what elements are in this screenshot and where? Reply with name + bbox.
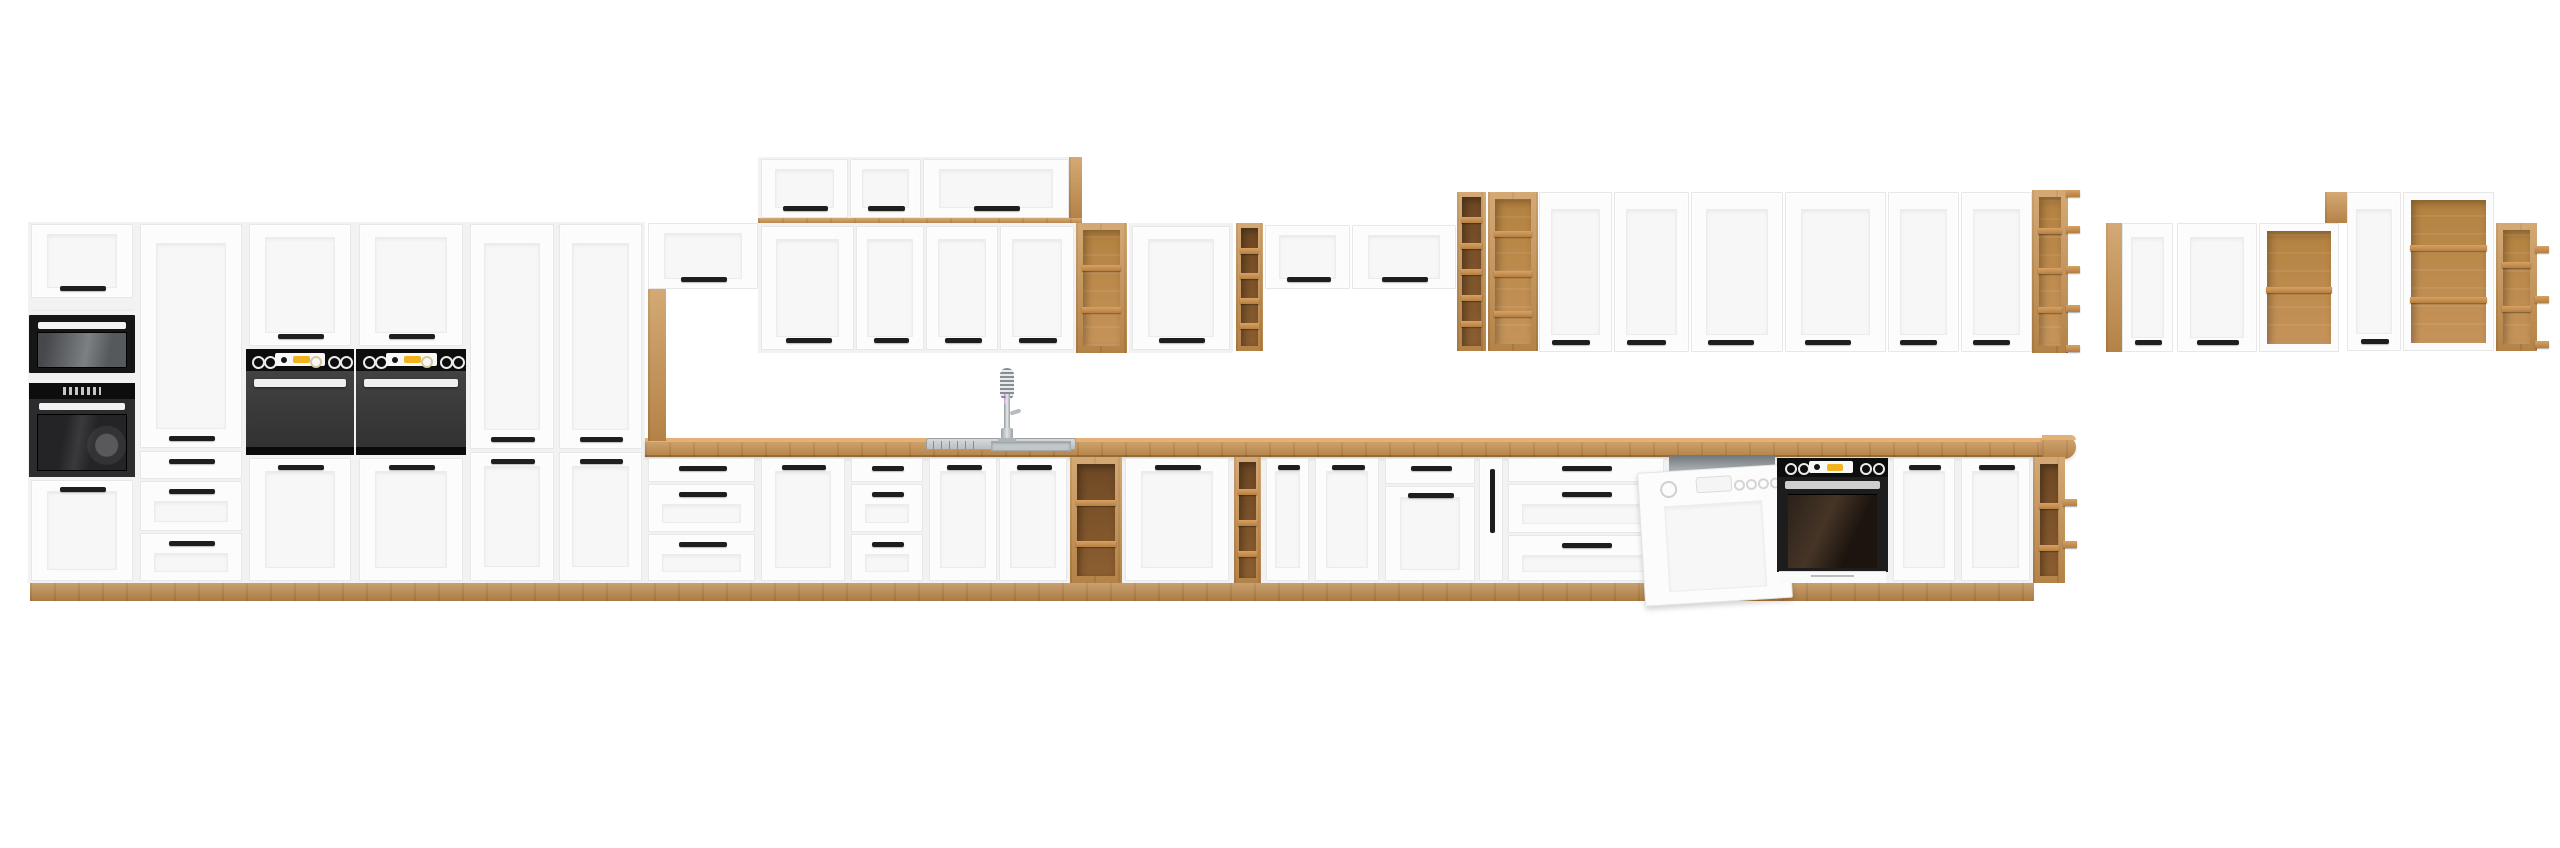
drawer-panel	[1522, 555, 1650, 572]
shelf-fin	[2066, 305, 2080, 312]
countertop-top-face	[645, 438, 2048, 442]
microwave-window	[37, 332, 127, 368]
drawer-handle	[1562, 492, 1612, 497]
panel-seam	[31, 309, 133, 311]
drawer-handle	[169, 459, 215, 464]
drawer-front	[851, 484, 923, 532]
door-handle	[945, 338, 982, 343]
door-handle	[278, 334, 324, 339]
wood-support-panel	[648, 289, 666, 441]
door-handle	[60, 286, 106, 291]
oven-housing-top-door	[359, 224, 463, 346]
door-panel	[572, 466, 629, 567]
tall-wall-cabinet-door	[1785, 192, 1886, 352]
door-handle	[491, 437, 535, 442]
oven-handle-bar	[364, 379, 458, 387]
base-cabinet-door	[1125, 458, 1229, 581]
shelf-interior	[2040, 464, 2058, 576]
shelf-board	[2410, 297, 2487, 303]
door-panel	[1903, 471, 1945, 568]
drawer-handle	[872, 492, 904, 497]
oven-knob	[1873, 463, 1885, 475]
dishwasher-button	[1734, 479, 1746, 491]
door-handle	[580, 437, 623, 442]
drawer-handle	[679, 466, 727, 471]
drawer-front	[140, 481, 242, 531]
oven-tower-top-door	[31, 224, 133, 298]
dishwasher-door	[1637, 464, 1793, 607]
shelf-board	[1494, 231, 1532, 237]
door-handle	[1979, 465, 2015, 470]
door-handle	[868, 206, 905, 211]
drawer-panel	[865, 554, 909, 572]
door-panel	[939, 169, 1053, 208]
tall-wall-cabinet-door	[1539, 192, 1612, 352]
sink-bowl	[991, 441, 1071, 451]
door-panel	[2190, 237, 2244, 338]
open-front-wall-cabinet	[2259, 223, 2339, 352]
drawer-panel	[662, 554, 741, 572]
tall-wall-cabinet-door	[1691, 192, 1783, 352]
drawer-front	[851, 534, 923, 581]
narrow-wall-shelf	[1457, 192, 1486, 351]
oven-handle-bar	[1785, 481, 1880, 489]
drawer-handle	[1562, 543, 1612, 548]
shelf-board	[2038, 268, 2062, 274]
door-panel	[1973, 209, 2020, 335]
drawer-handle	[872, 466, 904, 471]
door-panel	[1626, 209, 1677, 335]
door-handle	[1909, 465, 1941, 470]
open-wall-shelf	[1076, 223, 1127, 353]
door-handle	[1019, 338, 1057, 343]
oven-control-panel	[356, 349, 466, 371]
door-panel	[572, 243, 629, 430]
door-handle	[1805, 340, 1851, 345]
wall-cabinet-door	[926, 226, 998, 350]
drawer-handle	[1562, 466, 1612, 471]
wood-side-panel	[2106, 223, 2122, 352]
wall-flap-cabinet-door	[1352, 225, 1456, 289]
cargo-handle	[1490, 469, 1495, 533]
kitchen-scene	[0, 0, 2560, 848]
oven-control-panel	[1777, 458, 1888, 477]
door-panel	[375, 471, 447, 568]
oven-housing-top-door	[249, 224, 351, 346]
shelf-board	[1461, 243, 1482, 249]
door-handle	[1278, 465, 1300, 470]
faucet-flange	[998, 438, 1016, 442]
shelf-board	[2038, 228, 2062, 234]
drawer-handle	[169, 489, 215, 494]
oven-display-panel	[275, 353, 325, 366]
drawer-front	[648, 458, 755, 482]
oven-housing-base-door	[249, 458, 351, 581]
door-handle	[389, 334, 435, 339]
oven-bottom-trim	[356, 447, 466, 455]
door-handle	[786, 338, 832, 343]
shelf-board	[1082, 265, 1121, 271]
drawer-handle	[872, 542, 904, 547]
door-panel	[156, 243, 226, 429]
door-panel	[1801, 209, 1870, 335]
oven-door	[246, 371, 354, 447]
countertop	[645, 438, 2048, 457]
door-panel	[1900, 209, 1947, 335]
shelf-fin	[2066, 345, 2080, 352]
oven-knob	[452, 356, 465, 369]
shelf-board	[1238, 489, 1257, 495]
shelf-interior	[2503, 230, 2530, 344]
open-wall-shelf	[1488, 192, 1538, 351]
oven-knob	[340, 356, 353, 369]
shelf-fin	[2063, 541, 2077, 548]
top-box-flap-door	[761, 159, 848, 218]
door-panel	[484, 466, 540, 567]
door-handle	[278, 465, 324, 470]
shelf-board	[1076, 500, 1116, 506]
microwave-handle-bar	[38, 322, 126, 329]
built-in-oven-base	[1777, 458, 1888, 583]
shelf-board	[1238, 520, 1257, 526]
faucet	[990, 368, 1024, 442]
drawer-handle-line	[1811, 575, 1854, 577]
door-panel	[940, 471, 986, 568]
shelf-board	[2502, 262, 2531, 268]
drawer-panel	[662, 504, 741, 523]
door-handle	[1287, 277, 1331, 282]
oven-indicator-dot	[1814, 464, 1820, 470]
base-cabinet-door	[1266, 458, 1309, 581]
drawer-handle	[169, 541, 215, 546]
oven-bottom-trim	[246, 447, 354, 455]
door-handle	[1708, 340, 1754, 345]
door-panel	[47, 491, 117, 570]
shelf-interior	[1083, 230, 1120, 346]
door-handle	[389, 465, 435, 470]
wall-cabinet-door	[761, 226, 854, 350]
drawer-front	[140, 533, 242, 581]
shelf-board	[1082, 307, 1121, 313]
door-panel	[1326, 471, 1368, 568]
tall-pantry-door	[140, 224, 242, 448]
oven-display-panel	[1809, 461, 1853, 473]
dishwasher	[1667, 455, 1777, 583]
door-panel	[1279, 235, 1336, 279]
shelf-board	[2266, 287, 2332, 293]
door-handle	[1973, 340, 2010, 345]
door-handle	[947, 465, 982, 470]
shelf-board	[1240, 248, 1259, 254]
door-handle	[2135, 340, 2162, 345]
tall-pantry-upper-door	[559, 224, 642, 449]
top-box-flap-door	[850, 159, 921, 218]
tall-pantry-lower-door	[559, 452, 642, 581]
oven-knob	[1785, 463, 1797, 475]
door-handle	[1382, 277, 1428, 282]
sink-drainer	[933, 441, 979, 449]
door-panel	[1551, 209, 1600, 335]
oven-tower-bottom-door	[31, 480, 133, 581]
drawer-front	[1385, 458, 1475, 484]
oven-window	[37, 414, 127, 471]
shelf-board	[2502, 306, 2531, 312]
corner-open-shelf	[2496, 223, 2537, 351]
shelf-fin	[2066, 190, 2080, 197]
shelf-interior	[1077, 464, 1115, 576]
oven-knob	[1860, 463, 1872, 475]
shelf-fin	[2535, 296, 2549, 303]
drawer-panel	[154, 553, 228, 572]
door-panel	[1400, 497, 1460, 570]
open-front-wall-cabinet	[2403, 192, 2494, 351]
tall-wall-cabinet-door	[1888, 192, 1959, 352]
wall-cabinet-door	[1132, 226, 1230, 350]
oven-indicator-dot	[392, 357, 398, 363]
door-handle	[783, 206, 828, 211]
oven-control-panel	[246, 349, 354, 371]
door-panel	[375, 237, 447, 333]
oven-display	[63, 387, 101, 395]
door-handle	[1155, 465, 1201, 470]
shelf-board	[2038, 307, 2062, 313]
corner-open-shelf	[2032, 190, 2068, 353]
shelf-interior	[2411, 200, 2486, 343]
door-handle	[1552, 340, 1590, 345]
door-panel	[664, 233, 742, 279]
drawer-handle	[679, 492, 727, 497]
oven-door	[356, 371, 466, 447]
oven-display	[1827, 464, 1843, 471]
door-handle	[169, 436, 215, 441]
shelf-board	[1461, 217, 1482, 223]
faucet-lever	[1010, 408, 1022, 415]
shelf-board	[1240, 273, 1259, 279]
shelf-board	[1461, 321, 1482, 327]
door-panel	[2356, 209, 2392, 334]
tall-wall-cabinet-door	[1614, 192, 1689, 352]
oven-storage-drawer	[1779, 571, 1886, 583]
door-handle	[1159, 338, 1205, 343]
door-handle	[60, 487, 106, 492]
door-panel	[1706, 209, 1768, 335]
door-handle	[580, 459, 623, 464]
door-handle	[974, 206, 1020, 211]
drawer-handle	[679, 542, 727, 547]
wall-flap-cabinet-door	[648, 223, 758, 289]
narrow-base-shelf	[1234, 457, 1261, 583]
drawer-front	[648, 534, 755, 581]
sink-cabinet-door	[929, 458, 997, 581]
tall-pantry-lower-door	[470, 452, 554, 581]
door-panel	[265, 237, 335, 333]
drawer-panel	[1522, 504, 1650, 524]
door-panel	[1010, 471, 1056, 568]
countertop-rounded-end	[2042, 435, 2076, 459]
drawer-panel	[865, 504, 909, 523]
oven-display	[293, 356, 310, 363]
base-cabinet-door	[1893, 458, 1955, 581]
drawer-handle	[1411, 466, 1452, 471]
door-panel	[1275, 471, 1300, 568]
countertop-top-face	[2042, 435, 2076, 440]
built-in-oven-tower	[29, 383, 135, 477]
tall-pantry-upper-door	[470, 224, 554, 449]
door-panel	[1148, 239, 1214, 337]
base-cabinet-door	[1385, 486, 1475, 581]
shelf-fin	[2066, 266, 2080, 273]
shelf-board	[1494, 311, 1532, 317]
door-panel	[265, 471, 335, 568]
dishwasher-latch	[1695, 475, 1732, 493]
door-handle	[1017, 465, 1052, 470]
shelf-board	[2039, 545, 2059, 551]
oven-display	[404, 356, 421, 363]
door-panel	[2131, 237, 2164, 338]
shelf-fin	[2063, 499, 2077, 506]
door-panel	[1012, 239, 1062, 337]
faucet-neck	[1004, 404, 1010, 428]
narrow-wall-shelf	[1236, 223, 1263, 351]
wall-cabinet-door	[2177, 223, 2257, 352]
door-panel	[484, 243, 540, 430]
shelf-board	[2039, 503, 2059, 509]
drawer-front	[851, 458, 923, 482]
shelf-board	[1461, 295, 1482, 301]
oven-handle-bar	[254, 379, 346, 387]
door-panel	[47, 234, 117, 288]
oven-display-panel	[386, 353, 437, 366]
wall-flap-cabinet-door	[1265, 225, 1350, 289]
corner-base-shelf	[2033, 457, 2065, 583]
door-panel	[1368, 235, 1440, 279]
shelf-fin	[2535, 246, 2549, 253]
door-panel	[938, 239, 986, 337]
tall-wall-cabinet-door	[2347, 192, 2401, 351]
door-handle	[491, 459, 535, 464]
door-handle	[782, 465, 826, 470]
base-cabinet-door	[761, 458, 845, 581]
door-panel	[1972, 471, 2019, 568]
oven-indicator-dot	[281, 357, 287, 363]
door-handle	[1900, 340, 1937, 345]
shelf-board	[2410, 245, 2487, 251]
door-handle	[2197, 340, 2239, 345]
cargo-pullout	[1479, 458, 1503, 581]
shelf-board	[1494, 271, 1532, 277]
wall-cabinet-door	[2122, 223, 2173, 352]
shelf-board	[1238, 551, 1257, 557]
sink-cabinet-door	[999, 458, 1067, 581]
door-panel	[776, 239, 839, 337]
drawer-front	[648, 484, 755, 532]
base-cabinet-door	[1315, 458, 1379, 581]
built-in-double-oven	[246, 349, 354, 455]
oven-door	[1777, 477, 1888, 572]
door-handle	[1627, 340, 1666, 345]
oven-housing-base-door	[359, 458, 463, 581]
shelf-board	[1240, 298, 1259, 304]
oven-display-ring	[421, 356, 433, 368]
wood-filler	[2325, 192, 2347, 223]
door-panel	[775, 471, 831, 568]
door-handle	[1332, 465, 1365, 470]
dishwasher-dial	[1660, 481, 1678, 499]
door-panel	[867, 239, 913, 337]
wall-cabinet-door	[856, 226, 924, 350]
dishwasher-button	[1758, 478, 1770, 490]
open-base-shelf	[1070, 457, 1122, 583]
drawer-panel	[154, 501, 228, 522]
oven-window	[1788, 494, 1877, 568]
wood-end-wedge	[1069, 157, 1082, 218]
door-panel	[1141, 471, 1213, 568]
shelf-fin	[2535, 341, 2549, 348]
door-handle	[681, 277, 727, 282]
built-in-microwave	[29, 315, 135, 373]
shelf-board	[1240, 323, 1259, 329]
dishwasher-door-panel	[1664, 500, 1767, 592]
oven-handle-bar	[39, 403, 125, 410]
base-cabinet-door	[1961, 458, 2030, 581]
oven-display-ring	[310, 356, 322, 368]
dishwasher-button	[1746, 479, 1758, 491]
door-handle	[2361, 339, 2389, 344]
wall-cabinet-door	[1000, 226, 1074, 350]
top-box-flap-door	[923, 159, 1069, 218]
drawer-front	[140, 451, 242, 479]
shelf-board	[1461, 269, 1482, 275]
shelf-board	[1076, 541, 1116, 547]
door-handle	[1408, 493, 1454, 498]
shelf-fin	[2066, 226, 2080, 233]
built-in-double-oven	[356, 349, 466, 455]
tall-wall-cabinet-door	[1961, 192, 2032, 352]
door-panel	[775, 169, 834, 208]
door-handle	[874, 338, 909, 343]
door-panel	[862, 169, 909, 208]
countertop-edge-shadow	[645, 455, 2048, 457]
